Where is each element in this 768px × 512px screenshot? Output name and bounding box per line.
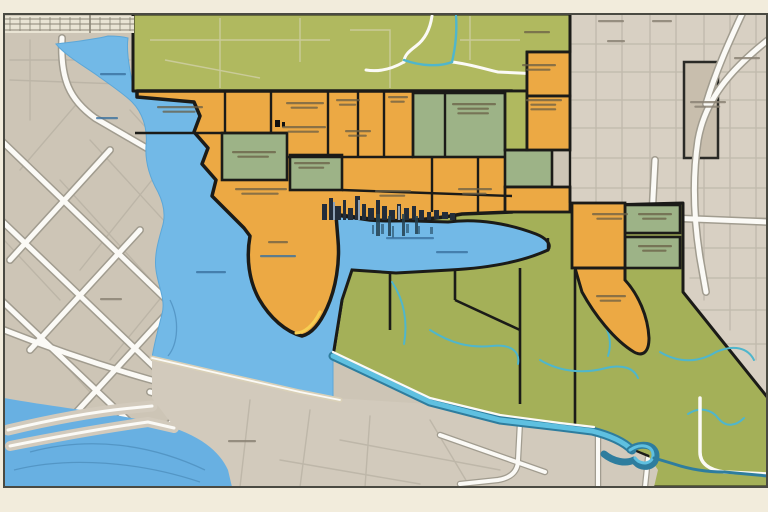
label-smudge	[596, 295, 626, 297]
label-smudge	[600, 300, 622, 302]
label-smudge	[375, 190, 411, 192]
label-smudge	[598, 20, 624, 22]
label-smudge	[530, 108, 556, 110]
label-smudge	[526, 99, 562, 101]
label-smudge	[734, 57, 760, 59]
label-smudge	[462, 193, 486, 195]
label-smudge	[100, 73, 126, 75]
label-smudge	[458, 188, 492, 190]
district-rural-north	[133, 14, 570, 91]
label-smudge	[457, 108, 489, 110]
label-smudge	[690, 101, 726, 103]
label-smudge	[345, 130, 371, 132]
label-smudge	[642, 218, 666, 220]
label-smudge	[298, 167, 324, 169]
label-smudge	[436, 251, 468, 253]
label-smudge	[235, 188, 287, 190]
label-smudge	[526, 69, 550, 71]
label-smudge	[642, 250, 666, 252]
label-smudge	[457, 112, 489, 114]
label-smudge	[237, 156, 269, 158]
label-smudge	[638, 245, 672, 247]
label-smudge	[607, 40, 625, 42]
label-smudge	[291, 107, 318, 109]
label-smudge	[652, 20, 672, 22]
label-smudge	[596, 218, 622, 220]
label-smudge	[286, 102, 324, 104]
label-smudge	[287, 131, 319, 133]
label-smudge	[241, 193, 278, 195]
map-canvas[interactable]	[0, 0, 768, 512]
label-smudge	[96, 117, 118, 119]
label-smudge	[452, 103, 496, 105]
label-smudge	[268, 241, 288, 243]
label-smudge	[694, 106, 720, 108]
label-smudge	[163, 111, 196, 113]
label-smudge	[100, 298, 122, 300]
label-smudge	[282, 126, 326, 128]
label-smudge	[294, 162, 330, 164]
label-smudge	[390, 101, 404, 103]
label-smudge	[388, 96, 408, 98]
label-smudge	[228, 440, 256, 442]
label-smudge	[157, 106, 203, 108]
label-smudge	[232, 151, 276, 153]
label-smudge	[339, 104, 356, 106]
map-screenshot	[0, 0, 768, 512]
label-smudge	[348, 135, 367, 137]
label-smudge	[530, 104, 556, 106]
label-smudge	[386, 237, 434, 239]
rail-band	[4, 14, 134, 33]
label-smudge	[592, 213, 628, 215]
label-smudge	[522, 64, 556, 66]
label-smudge	[524, 31, 550, 33]
label-smudge	[196, 271, 226, 273]
label-smudge	[336, 99, 360, 101]
label-smudge	[260, 255, 296, 257]
label-smudge	[379, 195, 405, 197]
label-smudge	[638, 213, 672, 215]
